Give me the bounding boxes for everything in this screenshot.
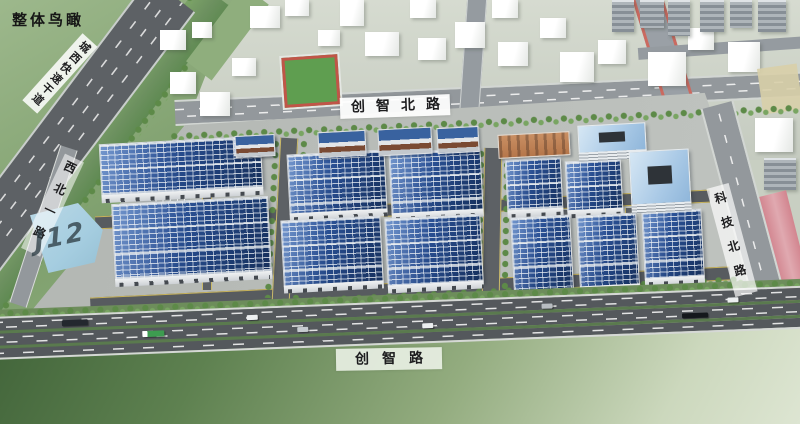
context-building	[560, 52, 594, 82]
context-building	[418, 38, 446, 60]
residential-tower	[764, 158, 796, 190]
office-building	[577, 122, 646, 154]
context-building	[160, 30, 186, 50]
campus-building	[234, 134, 275, 158]
context-building	[365, 32, 399, 56]
vehicle-car	[247, 315, 258, 320]
vehicle-truck	[682, 312, 708, 318]
context-building	[410, 0, 436, 18]
context-building	[232, 58, 256, 76]
solar-factory	[384, 214, 483, 287]
campus-building	[436, 126, 479, 154]
vehicle-truck	[62, 319, 88, 326]
solar-factory	[576, 212, 640, 287]
vehicle-car	[297, 327, 308, 332]
context-building	[648, 52, 686, 86]
residential-tower	[758, 0, 786, 32]
context-building	[318, 30, 340, 46]
context-building	[728, 42, 760, 72]
context-building	[250, 6, 280, 28]
residential-tower	[640, 0, 664, 28]
context-building	[492, 0, 518, 18]
context-building	[540, 18, 566, 38]
road-label-north: 创智北路	[340, 94, 451, 119]
solar-factory	[641, 208, 704, 279]
context-building	[192, 22, 212, 38]
vehicle-car	[727, 297, 738, 302]
context-building	[285, 0, 309, 16]
residential-tower	[730, 0, 752, 28]
page-title: 整体鸟瞰	[12, 9, 84, 30]
road-label-south: 创智路	[336, 347, 442, 371]
solar-factory	[286, 149, 387, 214]
campus-building	[377, 127, 432, 157]
campus-road	[482, 148, 503, 298]
context-building	[598, 40, 626, 64]
context-building	[755, 118, 793, 152]
vehicle-car	[541, 303, 552, 308]
context-building	[340, 0, 364, 26]
context-building	[455, 22, 485, 48]
solar-factory	[388, 148, 483, 215]
solar-factory	[510, 214, 574, 291]
residential-tower	[668, 0, 690, 36]
office-building	[629, 148, 692, 205]
context-building	[200, 92, 230, 116]
residential-tower	[700, 0, 724, 32]
campus-building	[317, 130, 366, 158]
sports-field	[281, 54, 340, 108]
context-building	[170, 72, 196, 94]
residential-tower	[612, 0, 634, 32]
dormitory-building	[497, 131, 570, 159]
vehicle-truck	[142, 330, 164, 337]
solar-factory	[565, 159, 624, 212]
solar-factory	[505, 157, 564, 212]
aerial-rendering: 整体鸟瞰 城西快速干道 西北一路 创智北路 科技北路 创智路 J12	[0, 0, 800, 424]
solar-factory	[111, 196, 272, 280]
solar-factory	[280, 215, 383, 286]
vehicle-car	[422, 323, 433, 328]
context-building	[498, 42, 528, 66]
